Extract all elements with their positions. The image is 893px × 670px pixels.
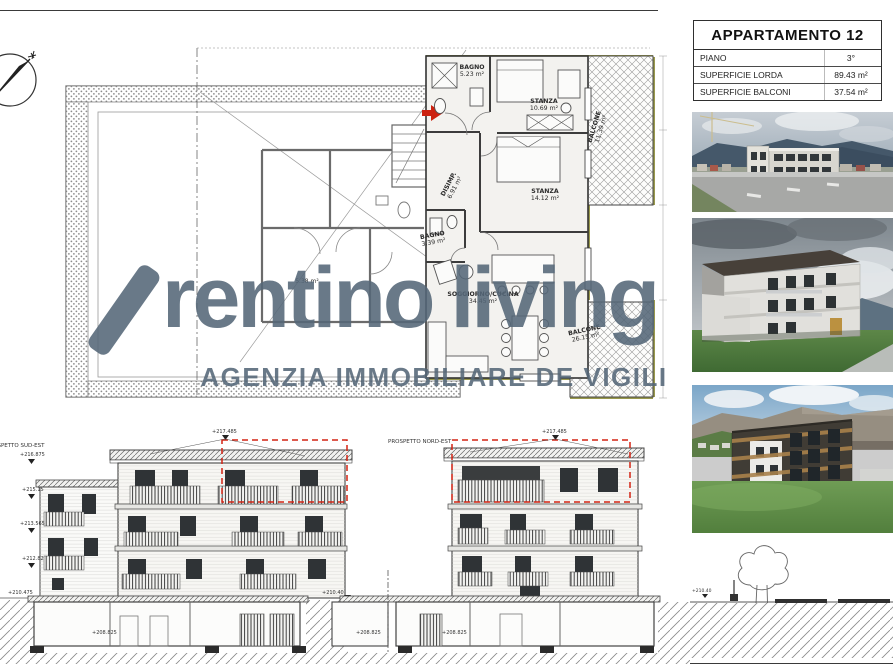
row-value: 89.43 m² (824, 67, 881, 83)
room-name: STANZA (530, 98, 558, 105)
elevation-marker: +212.82 (22, 556, 44, 562)
table-row: SUPERFICIE BALCONI 37.54 m² (694, 84, 881, 100)
elevation-marker: +210.40 (692, 588, 712, 594)
row-label: PIANO (694, 50, 824, 66)
elevations-drawing: PROSPETTO SUD-EST (0, 420, 690, 670)
elevation-marker: +213.565 (20, 521, 45, 527)
elevation-marker: +208.825 (92, 630, 117, 636)
room-area: 10.69 m² (530, 105, 559, 112)
elevation-marker: +216.875 (20, 452, 45, 458)
table-row: SUPERFICIE LORDA 89.43 m² (694, 67, 881, 84)
elevation-marker: +210.475 (8, 590, 33, 596)
room-area: 34.45 m² (469, 298, 498, 305)
dimension-line (659, 56, 667, 398)
room-area: 14.12 m² (531, 195, 560, 202)
building-rendering (702, 250, 860, 342)
row-label: SUPERFICIE LORDA (694, 67, 824, 83)
elevation-sud-est: PROSPETTO SUD-EST (0, 429, 352, 653)
photo-construction-site (692, 112, 893, 212)
elevation-label: PROSPETTO SUD-EST (0, 443, 45, 449)
elevation-marker: +217.485 (542, 429, 567, 435)
elevation-marker: +215.15 (22, 487, 44, 493)
ground-hatch (690, 603, 893, 658)
row-value: 37.54 m² (824, 84, 881, 100)
room-name: STANZA (531, 188, 559, 195)
listing-image: 5.38 m² (0, 0, 893, 670)
floor-plan-drawing: 5.38 m² (0, 0, 690, 420)
room-area: 5.23 m² (460, 71, 485, 78)
row-label: SUPERFICIE BALCONI (694, 84, 824, 100)
photo-rendering-front (692, 385, 893, 533)
elevation-marker: +217.485 (212, 429, 237, 435)
site-section-drawing: +210.40 (690, 530, 893, 670)
neighbor-area-label: 5.38 m² (295, 278, 319, 285)
photo-rendering-rear (692, 218, 893, 372)
north-arrow-icon (0, 51, 36, 106)
table-row: PIANO 3° (694, 50, 881, 67)
elevation-nord-est: PROSPETTO NORD-EST +217.485 (322, 429, 660, 653)
room-name: BAGNO (459, 64, 484, 71)
elevation-marker: +208.825 (442, 630, 467, 636)
title-block: APPARTAMENTO 12 PIANO 3° SUPERFICIE LORD… (693, 20, 882, 101)
room-name: SOGGIORNO/CUCINA (447, 291, 518, 298)
row-value: 3° (824, 50, 881, 66)
apartment-title: APPARTAMENTO 12 (694, 21, 881, 50)
elevation-marker: +210.40 (322, 590, 344, 596)
elevation-label: PROSPETTO NORD-EST (388, 439, 452, 445)
elevation-marker: +208.825 (356, 630, 381, 636)
